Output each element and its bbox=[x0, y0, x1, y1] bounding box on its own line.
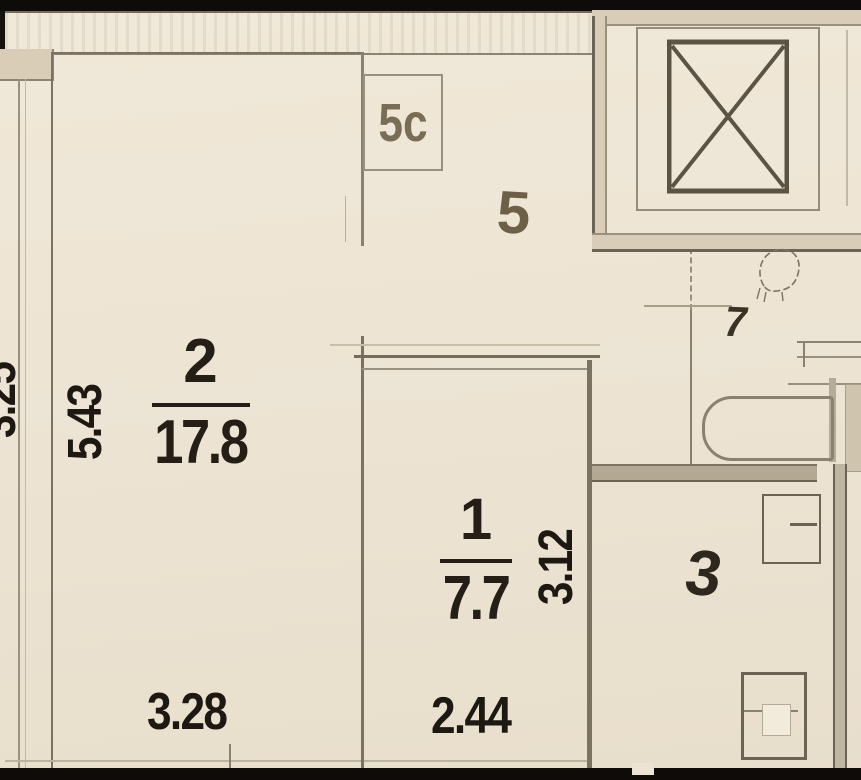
room1-width-dimension: 2.44 bbox=[431, 686, 510, 746]
bottom-band-notch bbox=[632, 763, 654, 775]
top-outer-wall-left-extension bbox=[0, 49, 54, 81]
room1-right-wall bbox=[587, 360, 592, 768]
room2-area: 17.8 bbox=[154, 407, 246, 479]
room7-stub-line-2 bbox=[797, 356, 861, 358]
bath-partition-solid bbox=[690, 310, 692, 466]
room1-top-wall-outer bbox=[354, 355, 600, 358]
room1-number: 1 bbox=[460, 486, 492, 554]
shaft-faint-line-right bbox=[846, 30, 848, 206]
room2-label: 2 17.8 bbox=[138, 326, 263, 479]
shaft-top-wall bbox=[592, 10, 861, 26]
room5-label: 5 bbox=[495, 177, 532, 248]
shaft-left-wall bbox=[592, 16, 607, 246]
room2-height-dimension: 5.43 bbox=[58, 346, 114, 498]
bath-partition-dashed bbox=[690, 248, 692, 310]
bath-cross-line bbox=[644, 305, 732, 307]
right-duct bbox=[845, 384, 861, 472]
partition-wall-lower bbox=[361, 336, 364, 768]
room7-stub-line-1 bbox=[797, 341, 861, 343]
bathtub bbox=[702, 396, 834, 461]
wall-smudge bbox=[345, 196, 346, 242]
room3-niche-upper-tick bbox=[790, 523, 817, 526]
room3-label: 3 bbox=[680, 535, 727, 611]
room2-number: 2 bbox=[183, 326, 217, 398]
room3-niche-upper bbox=[762, 494, 821, 564]
shaft-x-box-icon bbox=[667, 39, 789, 194]
shaft-bottom-wall bbox=[592, 233, 861, 252]
room7-stub-stem bbox=[803, 341, 805, 367]
scan-band-bottom bbox=[0, 768, 861, 780]
top-outer-wall bbox=[5, 11, 603, 55]
floor-plan: 3.25 5c 5 7 bbox=[0, 0, 861, 780]
room1-label: 1 7.7 bbox=[408, 486, 544, 635]
hall-faint-line bbox=[330, 344, 600, 346]
room1-area: 7.7 bbox=[443, 563, 509, 635]
bottom-joint-tick bbox=[229, 744, 231, 768]
room2-left-wall bbox=[51, 52, 53, 768]
room3-right-wall bbox=[833, 464, 847, 768]
closet-5c-label: 5c bbox=[378, 92, 427, 154]
bottom-wall-line bbox=[5, 760, 592, 762]
room2-width-dimension: 3.28 bbox=[147, 682, 226, 742]
room3-niche-lower-box bbox=[762, 704, 791, 736]
room3-top-wall bbox=[592, 464, 817, 482]
pencil-sketch-icon bbox=[752, 244, 806, 306]
room1-top-wall-inner bbox=[362, 368, 592, 370]
closet-5c-outline: 5c bbox=[363, 74, 443, 171]
room1-height-dimension: 3.12 bbox=[528, 492, 586, 642]
room2-top-wall bbox=[51, 52, 364, 54]
